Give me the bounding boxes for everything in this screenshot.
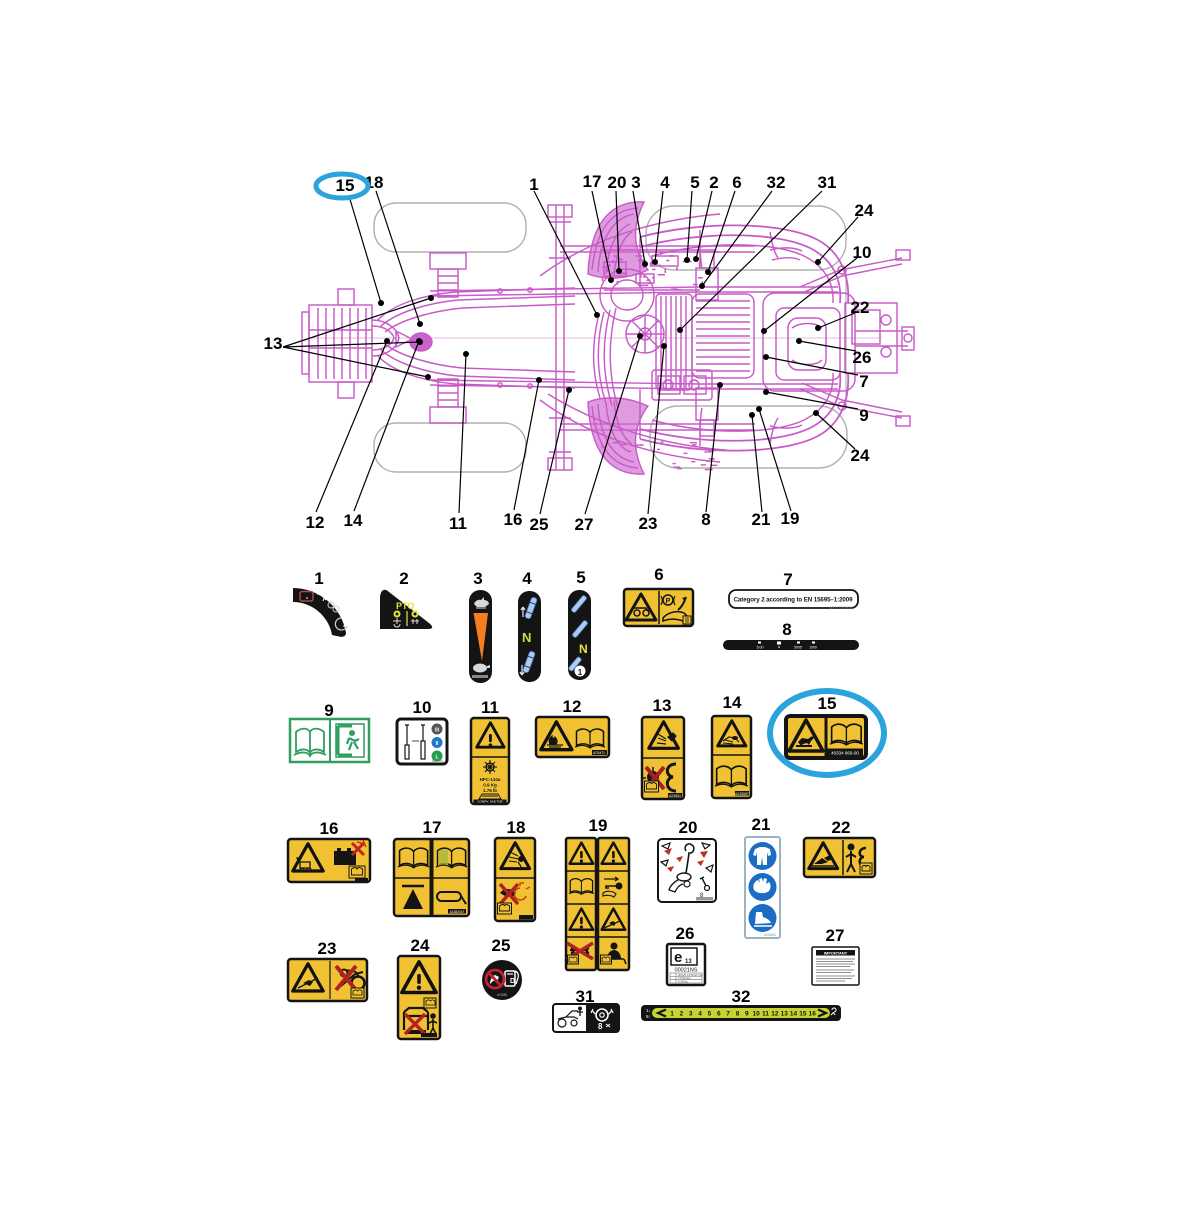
svg-text:COMPV. SAE TDR: COMPV. SAE TDR [477,800,503,804]
svg-text:1: 1 [578,668,583,677]
svg-text:24: 24 [851,446,870,465]
svg-text:13: 13 [264,334,283,353]
svg-text:1↓: 1↓ [646,1008,651,1013]
svg-text:6: 6 [717,1011,721,1018]
svg-text:13: 13 [781,1011,789,1018]
svg-text:19: 19 [781,509,800,528]
svg-text:14: 14 [344,511,363,530]
svg-text:5↑: 5↑ [646,1014,651,1019]
svg-text:15: 15 [336,176,355,195]
svg-text:▼: ▼ [777,646,780,650]
svg-text:9: 9 [859,406,868,425]
svg-text:8: 8 [701,510,710,529]
svg-text:0.9 Kg: 0.9 Kg [483,783,497,788]
svg-text:22: 22 [851,298,870,317]
svg-text:P: P [666,598,671,605]
svg-text:10: 10 [853,243,872,262]
svg-text:HFC-134a: HFC-134a [480,777,501,782]
svg-text:2: 2 [709,173,718,192]
svg-text:14: 14 [723,693,742,712]
svg-text:14: 14 [790,1011,798,1018]
svg-text:3: 3 [689,1011,693,1018]
svg-text:A23.2765/00: A23.2765/00 [829,605,852,610]
svg-text:10: 10 [413,698,432,717]
svg-text:00021NS: 00021NS [675,968,698,974]
svg-text:5005: 5005 [794,646,802,650]
svg-text:5: 5 [708,1011,712,1018]
svg-text:1: 1 [529,175,538,194]
svg-text:10: 10 [752,1011,760,1018]
svg-text:4: 4 [522,569,532,588]
svg-text:5.00: 5.00 [757,646,764,650]
svg-text:A23/471: A23/471 [593,751,605,755]
svg-text:9: 9 [745,1011,749,1018]
svg-text:31: 31 [818,173,837,192]
svg-text:N: N [579,642,588,656]
svg-text:8: 8 [598,1022,603,1031]
svg-text:5: 5 [690,173,699,192]
svg-text:26: 26 [853,348,872,367]
svg-text:24: 24 [855,201,874,220]
svg-text:IMPORTANT: IMPORTANT [824,951,848,956]
svg-text:21: 21 [752,510,771,529]
svg-text:1: 1 [314,569,323,588]
svg-text:9: 9 [324,701,333,720]
svg-text:Category 2 according to EN 156: Category 2 according to EN 15695–1:2009 [734,597,854,604]
svg-text:17: 17 [423,818,442,837]
svg-text:12: 12 [306,513,325,532]
svg-text:20: 20 [608,173,627,192]
svg-text:7: 7 [726,1011,730,1018]
svg-text:26: 26 [676,924,695,943]
svg-text:15: 15 [799,1011,807,1018]
svg-text:23: 23 [318,939,337,958]
svg-text:8: 8 [736,1011,740,1018]
svg-text:6: 6 [732,173,741,192]
svg-text:16: 16 [320,819,339,838]
svg-text:11: 11 [481,698,499,717]
svg-text:A23/94: A23/94 [432,759,443,763]
svg-text:21: 21 [752,815,771,834]
svg-text:PTO: PTO [396,601,414,611]
svg-text:8: 8 [782,620,791,639]
svg-text:4: 4 [660,173,670,192]
svg-text:e: e [674,949,682,966]
svg-text:27: 27 [575,515,594,534]
svg-text:20: 20 [679,818,698,837]
svg-text:A23/88: A23/88 [497,993,507,997]
svg-text:24: 24 [411,936,430,955]
svg-text:11: 11 [762,1011,769,1018]
svg-text:4: 4 [698,1011,702,1018]
svg-text:40334 869-00: 40334 869-00 [831,751,859,756]
svg-text:13: 13 [685,959,692,965]
svg-text:S 900Kg: S 900Kg [678,979,689,983]
svg-text:2: 2 [399,569,408,588]
svg-text:32: 32 [767,173,786,192]
svg-text:11: 11 [449,514,467,533]
svg-text:III: III [435,728,440,734]
svg-text:16: 16 [504,510,523,529]
svg-text:6: 6 [654,565,663,584]
svg-text:3: 3 [631,173,640,192]
svg-text:A23/8187: A23/8187 [735,792,749,796]
svg-text:1000: 1000 [809,646,817,650]
svg-text:25: 25 [530,515,549,534]
svg-text:D: D [510,978,515,985]
svg-text:23: 23 [639,514,658,533]
svg-text:N: N [522,630,531,645]
svg-text:25: 25 [492,936,511,955]
svg-text:7: 7 [859,372,868,391]
svg-text:13: 13 [653,696,672,715]
svg-text:A23/941: A23/941 [764,933,776,937]
svg-text:5: 5 [576,568,585,587]
svg-text:18: 18 [507,818,526,837]
svg-text:A23/641: A23/641 [669,794,681,798]
svg-text:27: 27 [826,926,845,945]
svg-text:16: 16 [809,1011,817,1018]
svg-text:7: 7 [783,570,792,589]
svg-text:22: 22 [832,818,851,837]
svg-text:2: 2 [680,1011,684,1018]
svg-text:15: 15 [818,694,837,713]
svg-text:3: 3 [473,569,482,588]
svg-text:12: 12 [563,697,582,716]
svg-text:17: 17 [583,172,602,191]
svg-text:32: 32 [732,987,751,1006]
svg-text:A1382047: A1382047 [450,910,465,914]
svg-text:12: 12 [771,1011,779,1018]
svg-text:1.76 lb: 1.76 lb [483,788,497,793]
svg-text:1: 1 [670,1011,674,1018]
svg-text:19: 19 [589,816,608,835]
